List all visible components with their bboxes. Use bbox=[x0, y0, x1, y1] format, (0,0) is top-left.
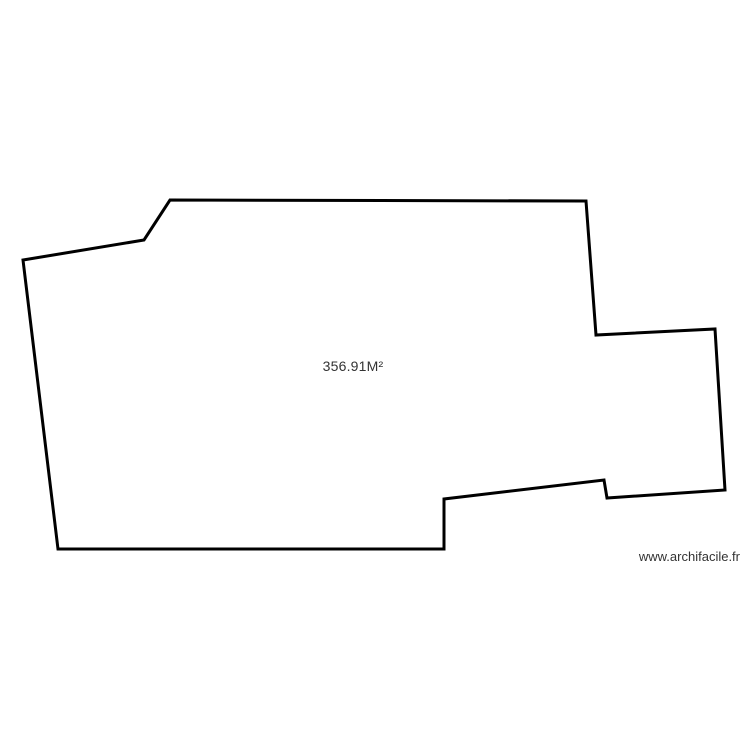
floorplan-canvas: 356.91M² www.archifacile.fr bbox=[0, 0, 750, 750]
room-outline[interactable] bbox=[23, 200, 725, 549]
watermark: www.archifacile.fr bbox=[639, 549, 740, 564]
room-area-label: 356.91M² bbox=[323, 358, 384, 374]
floorplan-svg bbox=[0, 0, 750, 750]
